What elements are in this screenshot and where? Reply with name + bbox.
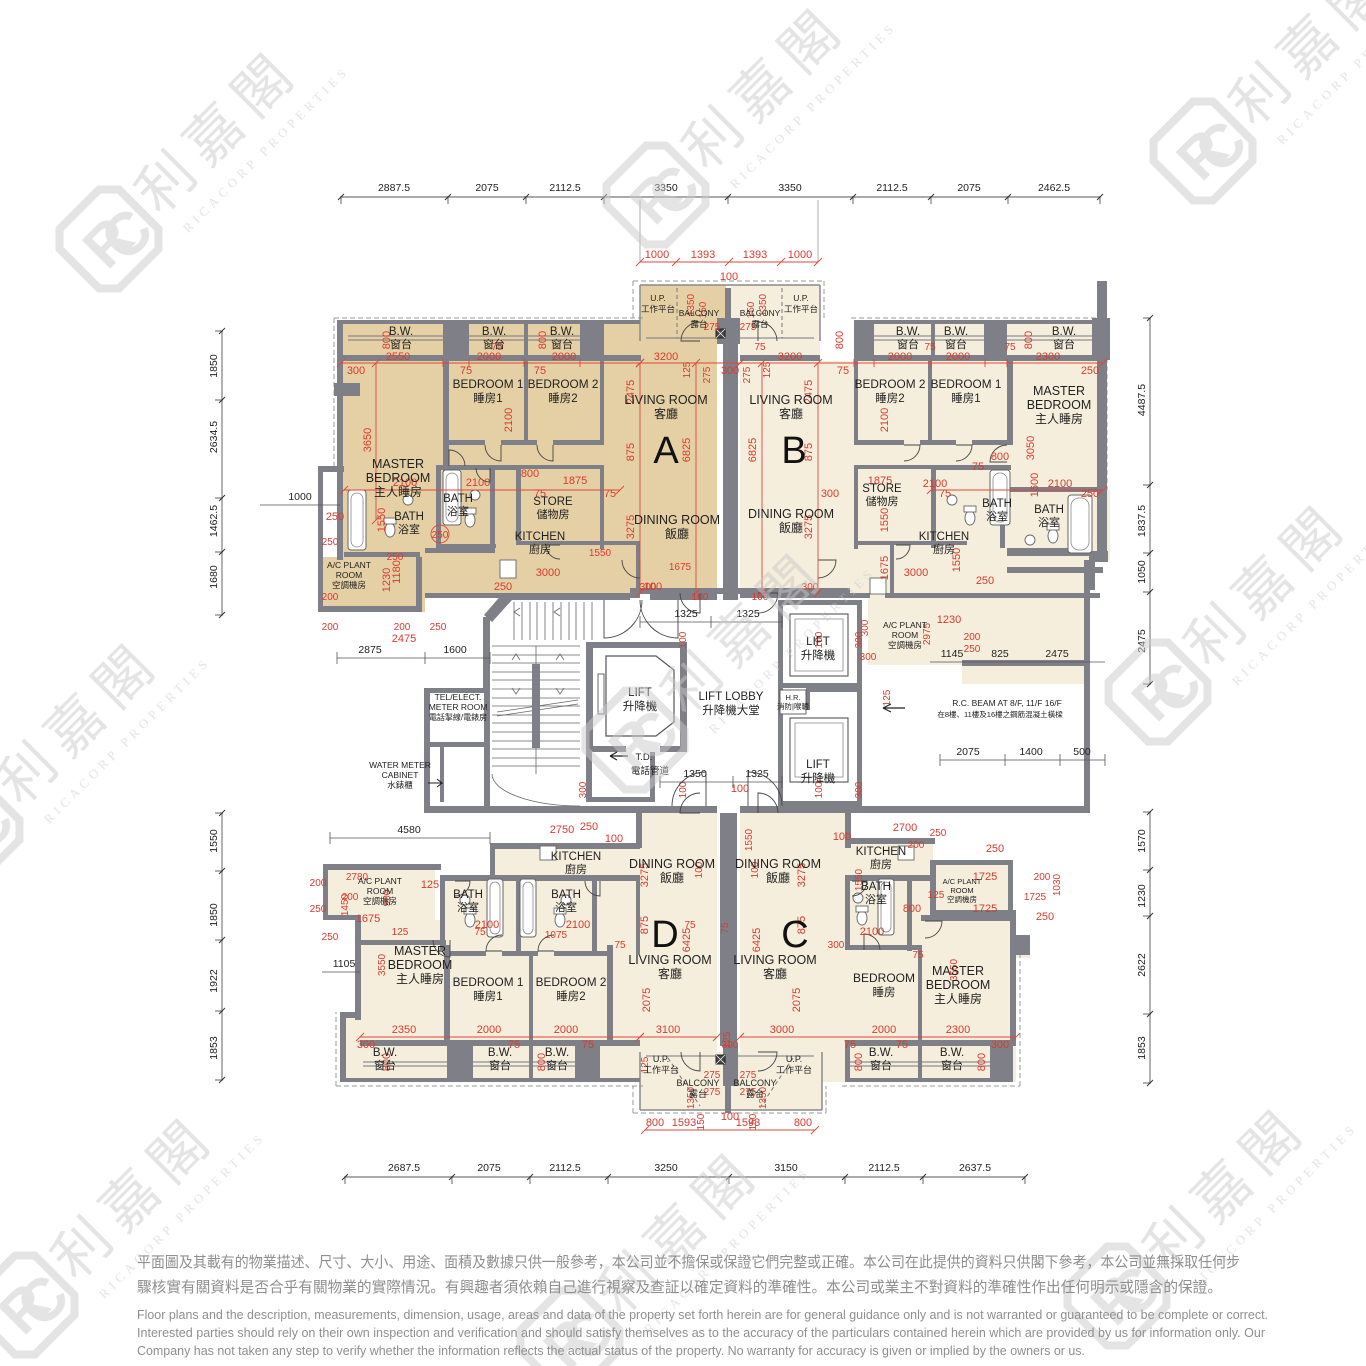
svg-text:300: 300 — [640, 582, 657, 593]
svg-text:客廳: 客廳 — [779, 406, 803, 421]
svg-text:U.P.: U.P. — [786, 1054, 802, 1064]
svg-text:3350: 3350 — [778, 182, 802, 194]
svg-text:H.R.: H.R. — [786, 693, 801, 702]
svg-text:3650: 3650 — [362, 428, 374, 452]
svg-text:U.P.: U.P. — [793, 293, 808, 303]
svg-text:1550: 1550 — [589, 548, 612, 559]
svg-text:2075: 2075 — [477, 1162, 501, 1174]
svg-text:250: 250 — [432, 530, 449, 541]
svg-text:睡房1: 睡房1 — [473, 990, 502, 1003]
svg-text:BATH: BATH — [1034, 504, 1064, 516]
svg-text:200: 200 — [310, 878, 327, 889]
svg-text:空調機房: 空調機房 — [947, 894, 977, 904]
svg-text:250: 250 — [310, 904, 327, 915]
svg-text:3000: 3000 — [536, 567, 560, 579]
svg-text:主人睡房: 主人睡房 — [934, 991, 982, 1006]
svg-text:飯廳: 飯廳 — [766, 870, 790, 885]
svg-text:DINING ROOM: DINING ROOM — [629, 857, 715, 871]
svg-text:空調機房: 空調機房 — [332, 580, 366, 590]
svg-text:U.P.: U.P. — [653, 1054, 669, 1064]
svg-text:2100: 2100 — [879, 408, 891, 432]
svg-text:1680: 1680 — [208, 565, 220, 589]
svg-text:250: 250 — [964, 644, 981, 655]
svg-text:A/C PLANT: A/C PLANT — [883, 620, 927, 630]
svg-text:1675: 1675 — [669, 562, 692, 573]
svg-text:800: 800 — [853, 1053, 865, 1071]
svg-text:2075: 2075 — [957, 182, 981, 194]
svg-text:BEDROOM 1: BEDROOM 1 — [931, 377, 1002, 391]
svg-text:ROOM: ROOM — [950, 886, 973, 895]
svg-text:客廳: 客廳 — [658, 966, 682, 981]
svg-text:2100: 2100 — [860, 926, 884, 938]
svg-text:BEDROOM: BEDROOM — [926, 978, 991, 992]
svg-text:2100: 2100 — [503, 408, 515, 432]
svg-text:4580: 4580 — [397, 824, 421, 836]
svg-text:窗台: 窗台 — [546, 1058, 568, 1072]
svg-text:2634.5: 2634.5 — [208, 421, 220, 453]
svg-text:METER ROOM: METER ROOM — [429, 702, 488, 712]
svg-text:1550: 1550 — [744, 828, 755, 851]
svg-text:1393: 1393 — [691, 249, 715, 261]
svg-text:廚房: 廚房 — [565, 862, 587, 876]
svg-text:BALCONY: BALCONY — [679, 308, 720, 318]
svg-text:275: 275 — [742, 366, 753, 383]
svg-text:2475: 2475 — [1045, 648, 1069, 660]
svg-text:100: 100 — [833, 831, 851, 843]
svg-text:1000: 1000 — [288, 491, 312, 503]
svg-text:2000: 2000 — [477, 1024, 501, 1036]
svg-text:KITCHEN: KITCHEN — [856, 846, 906, 858]
svg-text:2100: 2100 — [1048, 478, 1072, 490]
svg-text:露台: 露台 — [689, 1088, 707, 1099]
svg-text:100: 100 — [721, 1111, 739, 1123]
svg-text:1145: 1145 — [941, 648, 964, 660]
svg-text:睡房1: 睡房1 — [951, 392, 980, 405]
svg-text:800: 800 — [794, 1117, 812, 1129]
svg-text:BEDROOM 2: BEDROOM 2 — [536, 975, 607, 989]
svg-text:3000: 3000 — [770, 1024, 794, 1036]
svg-text:DINING ROOM: DINING ROOM — [735, 857, 821, 871]
svg-text:3250: 3250 — [654, 1162, 678, 1174]
svg-text:2112.5: 2112.5 — [549, 1162, 580, 1174]
svg-text:A: A — [653, 430, 679, 472]
svg-text:浴室: 浴室 — [555, 900, 577, 914]
svg-text:LIVING ROOM: LIVING ROOM — [624, 393, 707, 407]
svg-text:B.W.: B.W. — [488, 1047, 512, 1059]
svg-text:1030: 1030 — [1052, 873, 1063, 896]
svg-text:1393: 1393 — [743, 249, 767, 261]
svg-text:MASTER: MASTER — [1033, 384, 1085, 398]
svg-text:800: 800 — [991, 451, 1009, 463]
svg-text:BATH: BATH — [551, 889, 581, 901]
svg-text:150: 150 — [748, 1113, 759, 1130]
svg-text:BALCONY: BALCONY — [676, 1078, 719, 1088]
svg-text:100: 100 — [605, 833, 623, 845]
svg-text:2100: 2100 — [566, 919, 590, 931]
svg-text:消防|喉轆: 消防|喉轆 — [777, 701, 809, 711]
svg-text:1570: 1570 — [1136, 829, 1148, 853]
svg-text:3050: 3050 — [1025, 436, 1037, 460]
svg-text:100: 100 — [731, 783, 749, 795]
svg-text:窗台: 窗台 — [390, 337, 412, 351]
svg-text:275: 275 — [702, 366, 713, 383]
svg-text:B.W.: B.W. — [545, 1047, 569, 1059]
svg-text:1853: 1853 — [1136, 1036, 1148, 1060]
svg-text:BATH: BATH — [453, 889, 483, 901]
svg-text:2700: 2700 — [893, 822, 917, 834]
svg-text:B.W.: B.W. — [482, 326, 506, 338]
svg-text:300: 300 — [854, 781, 865, 798]
svg-text:75: 75 — [896, 1039, 908, 1051]
svg-text:Company has not taken any step: Company has not taken any step to verify… — [137, 1344, 1085, 1358]
svg-text:250: 250 — [326, 511, 344, 523]
svg-text:工作平台: 工作平台 — [643, 1064, 679, 1075]
svg-text:1105: 1105 — [333, 958, 356, 970]
svg-text:125: 125 — [682, 361, 693, 378]
svg-text:75: 75 — [582, 1039, 594, 1051]
svg-text:BATH: BATH — [982, 498, 1012, 510]
svg-text:300: 300 — [854, 631, 865, 648]
svg-text:2637.5: 2637.5 — [959, 1162, 991, 1174]
svg-text:露台: 露台 — [690, 319, 707, 329]
svg-text:300: 300 — [578, 781, 589, 798]
svg-text:露台: 露台 — [746, 1088, 764, 1099]
svg-text:1325: 1325 — [745, 768, 769, 780]
svg-text:BEDROOM 2: BEDROOM 2 — [528, 377, 599, 391]
svg-text:BEDROOM: BEDROOM — [853, 971, 915, 985]
svg-text:3000: 3000 — [904, 567, 928, 579]
svg-text:2075: 2075 — [791, 988, 803, 1012]
svg-text:800: 800 — [834, 331, 846, 349]
svg-text:250: 250 — [322, 537, 339, 548]
svg-text:800: 800 — [1023, 331, 1035, 349]
svg-text:2075: 2075 — [956, 746, 980, 758]
svg-text:1550: 1550 — [879, 508, 891, 532]
svg-text:250: 250 — [1036, 911, 1054, 923]
svg-text:1400: 1400 — [1019, 746, 1043, 758]
svg-text:水錶櫃: 水錶櫃 — [387, 780, 413, 790]
svg-text:125: 125 — [762, 361, 773, 378]
svg-text:1050: 1050 — [1136, 560, 1148, 584]
svg-text:300: 300 — [860, 652, 877, 663]
svg-text:C: C — [781, 914, 808, 956]
svg-text:2300: 2300 — [1036, 351, 1060, 363]
svg-text:250: 250 — [494, 581, 512, 593]
svg-text:LIFT: LIFT — [806, 759, 830, 771]
svg-text:D: D — [651, 914, 678, 956]
svg-text:BEDROOM 1: BEDROOM 1 — [453, 975, 524, 989]
svg-text:2750: 2750 — [550, 824, 574, 836]
svg-text:2875: 2875 — [358, 644, 382, 656]
svg-text:125: 125 — [928, 890, 945, 901]
svg-text:ROOM: ROOM — [336, 570, 362, 580]
svg-text:KITCHEN: KITCHEN — [919, 531, 969, 543]
svg-text:300: 300 — [828, 940, 845, 951]
svg-text:250: 250 — [322, 932, 339, 943]
svg-text:2000: 2000 — [872, 1024, 896, 1036]
svg-text:75: 75 — [604, 488, 616, 500]
svg-text:875: 875 — [639, 916, 651, 934]
svg-text:浴室: 浴室 — [865, 892, 887, 906]
svg-text:2350: 2350 — [392, 1024, 416, 1036]
svg-text:75: 75 — [939, 488, 951, 500]
svg-text:1230: 1230 — [1136, 884, 1148, 908]
svg-text:LIVING ROOM: LIVING ROOM — [749, 393, 832, 407]
svg-text:2687.5: 2687.5 — [388, 1162, 420, 1174]
svg-text:100: 100 — [720, 271, 738, 283]
svg-text:3200: 3200 — [654, 351, 678, 363]
svg-text:MASTER: MASTER — [394, 944, 446, 958]
svg-text:B.W.: B.W. — [940, 1047, 964, 1059]
svg-text:250: 250 — [1081, 365, 1099, 377]
svg-text:儲物房: 儲物房 — [866, 494, 899, 508]
svg-text:6825: 6825 — [681, 438, 693, 462]
svg-text:1550: 1550 — [208, 829, 220, 853]
svg-text:250: 250 — [387, 552, 404, 563]
svg-text:2622: 2622 — [1136, 953, 1148, 977]
svg-text:2300: 2300 — [946, 1024, 970, 1036]
svg-text:窗台: 窗台 — [945, 337, 967, 351]
svg-text:STORE: STORE — [533, 496, 573, 508]
svg-text:窗台: 窗台 — [1053, 337, 1075, 351]
svg-text:ROOM: ROOM — [367, 886, 393, 896]
svg-text:800: 800 — [521, 468, 539, 480]
svg-text:TEL/ELECT.: TEL/ELECT. — [435, 692, 482, 702]
svg-text:MASTER: MASTER — [932, 964, 984, 978]
svg-text:1675: 1675 — [879, 556, 891, 580]
svg-text:1075: 1075 — [545, 930, 568, 941]
svg-text:1725: 1725 — [1024, 892, 1047, 903]
svg-text:6425: 6425 — [751, 928, 763, 952]
svg-text:主人睡房: 主人睡房 — [396, 971, 444, 986]
svg-text:ROOM: ROOM — [892, 630, 918, 640]
svg-text:儲物房: 儲物房 — [537, 507, 570, 521]
svg-text:B.W.: B.W. — [550, 326, 574, 338]
svg-text:100: 100 — [692, 592, 709, 603]
svg-text:300: 300 — [347, 365, 365, 377]
svg-text:B.W.: B.W. — [896, 326, 920, 338]
svg-text:1875: 1875 — [563, 475, 587, 487]
svg-text:A/C PLANT: A/C PLANT — [943, 877, 982, 886]
svg-text:1853: 1853 — [208, 1036, 220, 1060]
svg-text:125: 125 — [882, 689, 893, 706]
svg-text:1550: 1550 — [376, 508, 388, 532]
svg-text:800: 800 — [646, 1117, 664, 1129]
svg-text:2550: 2550 — [386, 351, 410, 363]
svg-text:200: 200 — [964, 632, 981, 643]
svg-text:廚房: 廚房 — [529, 542, 551, 556]
svg-text:1600: 1600 — [443, 644, 467, 656]
svg-text:浴室: 浴室 — [447, 504, 469, 518]
svg-text:浴室: 浴室 — [1038, 515, 1060, 529]
svg-text:窗台: 窗台 — [941, 1058, 963, 1072]
svg-text:窗台: 窗台 — [483, 337, 505, 351]
svg-text:Floor plans and the descriptio: Floor plans and the description, measure… — [137, 1308, 1268, 1322]
svg-text:Interested parties should rely: Interested parties should rely on their … — [137, 1326, 1265, 1340]
svg-text:工作平台: 工作平台 — [784, 304, 818, 314]
svg-text:2000: 2000 — [946, 351, 970, 363]
svg-text:WATER METER: WATER METER — [369, 760, 431, 770]
svg-text:1593: 1593 — [672, 1117, 696, 1129]
svg-text:主人睡房: 主人睡房 — [1035, 411, 1083, 426]
svg-text:客廳: 客廳 — [654, 406, 678, 421]
svg-text:825: 825 — [991, 648, 1009, 660]
svg-text:75: 75 — [1004, 342, 1016, 353]
svg-text:200: 200 — [1034, 872, 1051, 883]
svg-text:DINING ROOM: DINING ROOM — [634, 513, 720, 527]
svg-text:2100: 2100 — [475, 919, 499, 931]
svg-text:75: 75 — [837, 365, 849, 377]
svg-text:1725: 1725 — [973, 903, 997, 915]
svg-text:睡房2: 睡房2 — [556, 990, 585, 1003]
svg-text:露台: 露台 — [751, 319, 768, 329]
svg-text:250: 250 — [580, 821, 598, 833]
svg-text:1850: 1850 — [208, 354, 220, 378]
svg-text:BATH: BATH — [861, 881, 891, 893]
svg-text:R.C. BEAM AT 8/F, 11/F 16/F: R.C. BEAM AT 8/F, 11/F 16/F — [952, 698, 1062, 708]
svg-text:STORE: STORE — [862, 483, 902, 495]
svg-text:3100: 3100 — [656, 1024, 680, 1036]
svg-text:1850: 1850 — [208, 903, 220, 927]
svg-text:窗台: 窗台 — [870, 1058, 892, 1072]
svg-text:B.W.: B.W. — [869, 1047, 893, 1059]
svg-text:125: 125 — [421, 879, 439, 891]
svg-text:BATH: BATH — [394, 511, 424, 523]
svg-text:B.W.: B.W. — [373, 1047, 397, 1059]
svg-text:2475: 2475 — [392, 633, 416, 645]
svg-text:200: 200 — [908, 840, 925, 851]
svg-text:75: 75 — [614, 940, 626, 951]
svg-text:2112.5: 2112.5 — [876, 182, 907, 194]
svg-text:500: 500 — [1073, 746, 1091, 758]
svg-text:B.W.: B.W. — [1052, 326, 1076, 338]
svg-text:A/C PLANT: A/C PLANT — [327, 560, 371, 570]
svg-text:800: 800 — [537, 331, 549, 349]
svg-text:浴室: 浴室 — [986, 509, 1008, 523]
svg-text:150: 150 — [696, 1113, 707, 1130]
svg-text:睡房: 睡房 — [873, 986, 896, 999]
svg-text:200: 200 — [342, 892, 359, 903]
svg-text:125: 125 — [392, 927, 409, 938]
svg-text:BEDROOM: BEDROOM — [366, 471, 431, 485]
svg-text:驟核實有關資料是否合乎有關物業的實際情況。有興趣者須依賴自己: 驟核實有關資料是否合乎有關物業的實際情況。有興趣者須依賴自己進行視察及查証以確定… — [137, 1278, 1222, 1296]
svg-text:窗台: 窗台 — [897, 337, 919, 351]
svg-text:200: 200 — [322, 622, 339, 633]
svg-text:B: B — [781, 430, 806, 472]
svg-text:1000: 1000 — [645, 249, 669, 261]
svg-text:MASTER: MASTER — [372, 457, 424, 471]
svg-text:250: 250 — [986, 843, 1004, 855]
svg-text:300: 300 — [991, 1039, 1009, 1051]
svg-text:2100: 2100 — [466, 477, 490, 489]
svg-text:75: 75 — [972, 461, 984, 473]
svg-text:睡房2: 睡房2 — [548, 392, 577, 405]
svg-text:2000: 2000 — [554, 1024, 578, 1036]
svg-text:75: 75 — [460, 365, 472, 377]
svg-text:4487.5: 4487.5 — [1136, 384, 1148, 416]
svg-text:空調機房: 空調機房 — [888, 640, 922, 650]
svg-text:2075: 2075 — [641, 988, 653, 1012]
svg-text:2112.5: 2112.5 — [549, 182, 580, 194]
svg-text:6425: 6425 — [681, 928, 693, 952]
svg-text:浴室: 浴室 — [398, 522, 420, 536]
svg-text:75: 75 — [534, 365, 546, 377]
svg-text:800: 800 — [976, 1053, 988, 1071]
svg-text:75: 75 — [720, 922, 731, 934]
svg-text:1675: 1675 — [356, 913, 380, 925]
svg-text:窗台: 窗台 — [489, 1058, 511, 1072]
svg-text:200: 200 — [394, 622, 411, 633]
svg-text:BEDROOM: BEDROOM — [388, 958, 453, 972]
svg-text:250: 250 — [1081, 488, 1099, 500]
svg-text:300: 300 — [821, 488, 839, 500]
svg-text:BALCONY: BALCONY — [740, 308, 781, 318]
svg-text:工作平台: 工作平台 — [641, 304, 675, 314]
svg-text:1837.5: 1837.5 — [1136, 505, 1148, 537]
svg-text:BEDROOM: BEDROOM — [1027, 398, 1092, 412]
svg-text:BEDROOM 2: BEDROOM 2 — [855, 377, 926, 391]
svg-text:2000: 2000 — [552, 351, 576, 363]
svg-text:BALCONY: BALCONY — [733, 1078, 776, 1088]
svg-text:電話掣線/電錶房: 電話掣線/電錶房 — [429, 712, 487, 722]
svg-text:125: 125 — [722, 1031, 733, 1048]
svg-text:平面圖及其載有的物業描述、尺寸、大小、用途、面積及數據只供一: 平面圖及其載有的物業描述、尺寸、大小、用途、面積及數據只供一般參考，本公司並不擔… — [137, 1253, 1240, 1271]
svg-text:1000: 1000 — [788, 249, 812, 261]
svg-text:睡房2: 睡房2 — [875, 392, 904, 405]
svg-text:800: 800 — [903, 903, 921, 915]
svg-text:KITCHEN: KITCHEN — [551, 851, 601, 863]
svg-text:2887.5: 2887.5 — [378, 182, 410, 194]
svg-text:B.W.: B.W. — [389, 326, 413, 338]
svg-text:1600: 1600 — [1029, 473, 1041, 497]
svg-text:250: 250 — [976, 575, 994, 587]
svg-text:窗台: 窗台 — [374, 1058, 396, 1072]
svg-text:875: 875 — [625, 443, 637, 461]
svg-text:廚房: 廚房 — [933, 542, 955, 556]
svg-text:A/C PLANT: A/C PLANT — [358, 876, 402, 886]
svg-text:廚房: 廚房 — [870, 857, 892, 871]
svg-text:在8樓、11樓及16樓之鋼筋混凝土橫樑: 在8樓、11樓及16樓之鋼筋混凝土橫樑 — [937, 709, 1063, 719]
svg-text:U.P.: U.P. — [650, 293, 665, 303]
svg-text:3200: 3200 — [778, 351, 802, 363]
svg-text:浴室: 浴室 — [457, 900, 479, 914]
svg-text:300: 300 — [721, 365, 739, 377]
svg-text:250: 250 — [430, 622, 447, 633]
svg-text:CABINET: CABINET — [382, 770, 419, 780]
svg-text:主人睡房: 主人睡房 — [374, 484, 422, 499]
svg-text:75: 75 — [912, 950, 924, 961]
svg-text:客廳: 客廳 — [763, 966, 787, 981]
svg-text:飯廳: 飯廳 — [660, 870, 684, 885]
svg-text:BEDROOM 1: BEDROOM 1 — [453, 377, 524, 391]
svg-text:200: 200 — [322, 592, 339, 603]
svg-text:1180: 1180 — [391, 560, 403, 584]
svg-text:1230: 1230 — [937, 614, 961, 626]
svg-text:3550: 3550 — [377, 953, 388, 976]
svg-text:DINING ROOM: DINING ROOM — [748, 507, 834, 521]
svg-text:B.W.: B.W. — [944, 326, 968, 338]
svg-text:升降機: 升降機 — [801, 771, 836, 785]
svg-text:2462.5: 2462.5 — [1038, 182, 1070, 194]
svg-text:75: 75 — [924, 342, 936, 353]
svg-text:飯廳: 飯廳 — [665, 526, 689, 541]
svg-text:窗台: 窗台 — [551, 337, 573, 351]
svg-text:BATH: BATH — [443, 493, 473, 505]
svg-text:升降機: 升降機 — [801, 648, 836, 662]
svg-text:工作平台: 工作平台 — [776, 1064, 812, 1075]
svg-text:睡房1: 睡房1 — [473, 392, 502, 405]
svg-text:2000: 2000 — [888, 351, 912, 363]
